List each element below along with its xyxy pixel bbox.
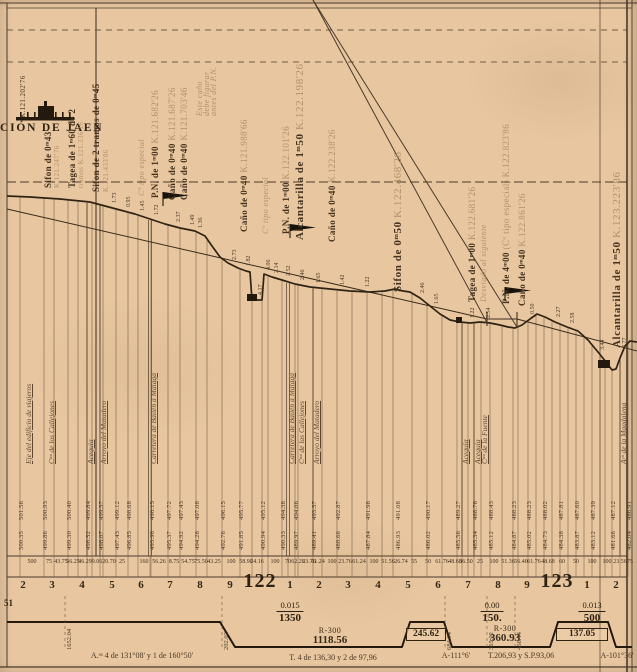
alignment-tick-value: 365.02 xyxy=(489,632,496,650)
gradient-length: 500 xyxy=(578,613,605,625)
location-label: Aʸᵒ de la Magdalena xyxy=(620,403,628,464)
structure-callout: Caño de 0ᵐ40 K.122.238'26 xyxy=(328,129,337,242)
grade-elevation-value: 491.08 xyxy=(396,501,403,520)
distance-value: 100 xyxy=(227,559,236,565)
distance-value: 48.68 xyxy=(541,559,555,565)
ground-elevation-value: 490.33 xyxy=(281,531,288,550)
ground-elevation-value: 482.04 xyxy=(627,531,634,550)
location-label: Eje del edificio de viajeros xyxy=(25,384,33,464)
cut-height-value: 4.06 xyxy=(266,259,272,270)
cut-height-value: 2.37 xyxy=(176,211,182,222)
distance-value: 75 xyxy=(627,559,633,565)
cut-height-value: 2.14 xyxy=(274,262,280,273)
callout-segment: Alcantarilla de 1ᵐ50 xyxy=(294,130,306,240)
grade-elevation-value: 493.57 xyxy=(312,501,319,520)
gradient-length: 150. xyxy=(481,613,504,625)
callout-segment: Caño de 0ᵐ40 xyxy=(179,141,189,200)
structure-callout: P.N. de 1ᵐ00 K.121.682'26 xyxy=(151,90,160,198)
grade-elevation-value: 494.06 xyxy=(294,501,301,520)
ground-elevation-value: 499.86 xyxy=(43,531,50,550)
alignment-tick-value: 684.04 xyxy=(447,632,454,650)
grade-elevation-value: 498.15 xyxy=(150,501,157,520)
callout-segment: P.N. de 1ᵐ00 xyxy=(281,179,291,234)
distance-value: 75 xyxy=(46,559,52,565)
ground-elevation-value: 485.56 xyxy=(456,531,463,550)
distance-value: 54.75 xyxy=(181,559,195,565)
callout-segment: Caño de 0ᵐ40 xyxy=(327,183,337,242)
grade-elevation-value: 492.87 xyxy=(336,501,343,520)
ground-elevation-value: 495.98 xyxy=(150,531,157,550)
cut-height-value: 1.45 xyxy=(140,200,146,211)
ground-elevation-value: 484.73 xyxy=(543,531,550,550)
callout-segment: K.122.101'26 xyxy=(281,126,291,179)
straight-length-box: 137.05 xyxy=(556,628,608,641)
cut-height-value: 1.82 xyxy=(246,256,252,267)
hectometer-number: 3 xyxy=(49,579,55,591)
station-icon xyxy=(34,112,36,117)
ground-elevation-value: 491.85 xyxy=(239,531,246,550)
grade-elevation-value: 500.40 xyxy=(67,501,74,520)
distance-value: 50 xyxy=(425,559,431,565)
grade-elevation-value: 487.81 xyxy=(559,501,566,520)
ground-elevation-value: 486.93 xyxy=(396,531,403,550)
grade-elevation-value: 495.12 xyxy=(261,501,268,520)
gradient-fraction: 0.013500 xyxy=(578,595,605,625)
ground-elevation-value: 487.84 xyxy=(366,531,373,550)
grade-elevation-value: 497.43 xyxy=(179,501,186,520)
callout-segment: Tagea de 1ᵐ60 de 2 xyxy=(67,109,77,188)
alignment-note: T.206,93 y S.P.93,06 xyxy=(488,651,554,660)
ground-elevation-value: 485.12 xyxy=(489,531,496,550)
ground-elevation-value: 492.76 xyxy=(221,531,228,550)
distance-value: 61.76 xyxy=(527,559,541,565)
distance-value: 70 xyxy=(285,559,291,565)
callout-segment: Alcantarilla de 1ᵐ50 xyxy=(611,238,623,348)
ground-elevation-value: 483.12 xyxy=(591,531,598,550)
grade-elevation-value: 497.72 xyxy=(167,501,174,520)
distance-value: 100 xyxy=(271,559,280,565)
distance-value: 50 xyxy=(573,559,579,565)
distance-value: 75.50 xyxy=(194,559,208,565)
distance-value: 20.70 xyxy=(102,559,116,565)
location-label: Carretera de Bailén á Málaga xyxy=(288,373,296,464)
callout-segment: Cº tipo especial xyxy=(261,177,270,234)
cut-height-value: 1.42 xyxy=(340,275,346,286)
kilometer-number: 122 xyxy=(244,570,277,593)
distance-value: 23.56 xyxy=(613,559,627,565)
alignment-note: A-111°6' xyxy=(442,651,471,660)
distance-value: 51.36 xyxy=(501,559,515,565)
location-label: Cⁿᵒ de la Fuente xyxy=(481,415,489,464)
grade-elevation-value: 496.15 xyxy=(221,501,228,520)
cut-height-value: 1.65 xyxy=(434,294,440,305)
callout-segment: Tagea de 1ᵐ00 xyxy=(467,240,477,302)
hectometer-number: 9 xyxy=(524,579,530,591)
hectometer-number: 5 xyxy=(405,579,411,591)
ground-elevation-value: 488.66 xyxy=(336,531,343,550)
cut-height-value: 2.52 xyxy=(286,266,292,277)
station-icon xyxy=(48,112,50,117)
hectometer-number: 3 xyxy=(345,579,351,591)
ground-elevation-value: 483.87 xyxy=(575,531,582,550)
cut-height-value: 1.73 xyxy=(112,192,118,203)
hectometer-number: 9 xyxy=(227,579,233,591)
grade-elevation-value: 491.98 xyxy=(366,501,373,520)
ground-elevation-value: 486.02 xyxy=(426,531,433,550)
ground-elevation-value: 485.02 xyxy=(527,531,534,550)
hectometer-number: 7 xyxy=(167,579,173,591)
grade-elevation-value: 490.17 xyxy=(426,501,433,520)
location-label: Arroyo del Matadero xyxy=(313,401,321,464)
distance-value: 500 xyxy=(28,559,37,565)
structure-callout: Tagea de 1ᵐ00 K.122.681'26 xyxy=(468,187,477,302)
callout-segment: Cº tipo especial xyxy=(137,139,146,196)
grade-elevation-value: 487.60 xyxy=(575,501,582,520)
profile-sheet: { "palette":{"paper":"#e8c7a0","ink":"#3… xyxy=(0,0,637,672)
callout-segment: K.122.861'26 xyxy=(517,193,527,246)
callout-segment: (Cº tipo especial) xyxy=(501,177,511,249)
distance-value: 36.50 xyxy=(459,559,473,565)
distance-value: 23.76 xyxy=(338,559,352,565)
callout-segment: Caño de 0ᵐ40 xyxy=(239,173,249,232)
grade-elevation-value: 498.68 xyxy=(127,501,134,520)
curve-length: 1118.56 xyxy=(313,635,348,646)
distance-value: 26.74 xyxy=(394,559,408,565)
hectometer-number: 4 xyxy=(79,579,85,591)
grade-elevation-value: 487.39 xyxy=(591,501,598,520)
culvert-mark xyxy=(598,360,610,368)
callout-segment: P.N. de 1ᵐ00 xyxy=(150,143,160,198)
distance-value: 61.24 xyxy=(311,559,325,565)
location-label: Cⁿᵒ de los Callejones xyxy=(48,401,56,464)
kilometer-number: 123 xyxy=(541,570,574,593)
alignment-tick-value: 1652.04 xyxy=(67,629,74,650)
grade-elevation-value: 488.02 xyxy=(543,501,550,520)
ground-elevation-value: 500.35 xyxy=(19,531,26,550)
callout-segment: K.121.682'26 xyxy=(150,90,160,143)
grade-elevation-value: 489.27 xyxy=(456,501,463,520)
ground-elevation-value: 497.43 xyxy=(115,531,122,550)
hectometer-number: 4 xyxy=(375,579,381,591)
grade-elevation-value: 494.38 xyxy=(281,501,288,520)
grade-elevation-value: 486.91 xyxy=(627,501,634,520)
callout-segment: K.121.687'26 xyxy=(167,87,177,140)
structure-callout: P.N. de 1ᵐ00 K.122.101'26 xyxy=(282,126,291,234)
distance-value: 100 xyxy=(603,559,612,565)
alignment-tick-value: 202.02 xyxy=(224,632,231,650)
ground-elevation-value: 484.38 xyxy=(559,531,566,550)
distance-value: 100 xyxy=(328,559,337,565)
distance-value: 56.40 xyxy=(514,559,528,565)
cut-height-value: 1.72 xyxy=(154,205,160,216)
structure-callout: Caño de 0ᵐ40 K.121.687'26 xyxy=(168,87,177,200)
ground-elevation-value: 499.30 xyxy=(67,531,74,550)
distance-value: 46.29 xyxy=(78,559,92,565)
cut-height-value: 2.46 xyxy=(300,270,306,281)
callout-segment: K.121.247'76 xyxy=(53,145,61,188)
corner-value: 51 xyxy=(4,598,13,608)
structure-callout: Desviado al siguiente xyxy=(480,224,488,302)
cut-height-value: 2.46 xyxy=(420,283,426,294)
station-icon xyxy=(27,112,29,117)
grade-elevation-value: 488.23 xyxy=(527,501,534,520)
gradient-slope: 0.015 xyxy=(276,600,303,612)
callout-segment: Sifon de 0ᵐ43 xyxy=(43,131,53,188)
hectometer-number: 6 xyxy=(138,579,144,591)
structure-callout: Caño de 0ᵐ40 K.121.988'66 xyxy=(240,119,249,232)
distance-value: 160 xyxy=(140,559,149,565)
distance-value: 43.25 xyxy=(207,559,221,565)
distance-value: 25 xyxy=(477,559,483,565)
gradient-fraction: 0.00150. xyxy=(481,595,504,625)
culvert-mark xyxy=(456,317,462,323)
ground-elevation-value: 498.52 xyxy=(86,531,93,550)
cut-height-value: 1.65 xyxy=(316,272,322,283)
gradient-slope: 0.013 xyxy=(578,600,605,612)
gradient-fraction: 0.0151350 xyxy=(276,595,303,625)
cut-height-value: 4.17 xyxy=(258,285,264,296)
structure-callout: Sifon de 2 tramos de 0ᵐ45 xyxy=(92,83,101,192)
hectometer-number: 2 xyxy=(613,579,619,591)
hectometer-number: 5 xyxy=(109,579,115,591)
grade-elevation-value: 488.23 xyxy=(512,501,519,520)
structure-callout: Cº tipo especial xyxy=(138,139,146,196)
callout-segment: Sifon de 0ᵐ50 xyxy=(392,218,404,292)
hectometer-number: 6 xyxy=(435,579,441,591)
callout-segment: Desviado al siguiente xyxy=(479,224,488,302)
distance-value: 61.24 xyxy=(352,559,366,565)
structure-callout: Sifon de 0ᵐ50 K.122.468'26 xyxy=(393,151,404,292)
grade-elevation-value: 501.56 xyxy=(19,501,26,520)
ground-elevation-value: 489.97 xyxy=(294,531,301,550)
hectometer-number: 8 xyxy=(495,579,501,591)
ground-elevation-value: 495.37 xyxy=(167,531,174,550)
cut-height-value: 3.44 xyxy=(600,339,606,350)
ground-elevation-value: 496.85 xyxy=(127,531,134,550)
cut-height-value: 1.22 xyxy=(365,276,371,287)
distance-value: 100 xyxy=(588,559,597,565)
grade-elevation-value: 499.57 xyxy=(99,501,106,520)
ground-elevation-value: 489.41 xyxy=(312,531,319,550)
callout-segment: P.N. de 4ᵐ00 xyxy=(501,249,511,304)
callout-segment: K.121.703'46 xyxy=(179,87,189,140)
cut-height-value: 2.58 xyxy=(570,313,576,324)
ground-elevation-value: 481.66 xyxy=(611,531,618,550)
ground-elevation-value: 484.87 xyxy=(512,531,519,550)
cut-height-value: 2.54 xyxy=(486,307,492,318)
gradient-slope: 0.00 xyxy=(481,600,504,612)
callout-segment: K.122.468'26 xyxy=(392,151,404,218)
drawing-area: CIÓN DE JAEN K.121.202'76Sifon de 0ᵐ43K.… xyxy=(0,0,637,672)
structure-callout: Tagea de 1ᵐ60 de 2 xyxy=(68,109,77,188)
station-icon xyxy=(62,112,64,117)
alignment-note: A.ᵒˢ 4 de 131°08' y 1 de 160°50' xyxy=(91,651,193,660)
callout-segment: K.121.202'76 xyxy=(19,75,27,118)
grade-elevation-value: 500.93 xyxy=(43,501,50,520)
grade-elevation-value: 495.77 xyxy=(239,501,246,520)
callout-segment: K.121.433'86 xyxy=(102,149,110,192)
ground-elevation-value: 498.07 xyxy=(99,531,106,550)
callout-segment: K.122.681'26 xyxy=(467,187,477,240)
hectometer-number: 2 xyxy=(316,579,322,591)
callout-segment: tramos K.121.336'16 xyxy=(77,122,85,188)
hectometer-number: 2 xyxy=(20,579,26,591)
grade-elevation-value: 488.43 xyxy=(489,501,496,520)
distance-value: 55 xyxy=(411,559,417,565)
cut-height-value: 1.36 xyxy=(198,217,204,228)
callout-segment: K.122.238'26 xyxy=(327,129,337,182)
structure-callout: Alcantarilla de 1ᵐ50 K.122.198'26 xyxy=(295,63,306,240)
culvert-mark xyxy=(247,294,257,301)
grade-elevation-value: 499.12 xyxy=(115,501,122,520)
distance-value: 24.16 xyxy=(250,559,264,565)
structure-callout: Caño de 0ᵐ40 K.122.861'26 xyxy=(518,193,527,306)
gradient-length: 1350 xyxy=(276,613,303,625)
structure-callout: Sifon de 0ᵐ43 xyxy=(44,131,53,188)
structure-callout: tramos K.121.336'16 xyxy=(78,122,85,188)
ground-elevation-value: 490.94 xyxy=(261,531,268,550)
location-label: Acequia xyxy=(87,439,95,464)
callout-segment: K.121.988'66 xyxy=(239,119,249,172)
cut-height-value: 2.27 xyxy=(556,307,562,318)
structure-callout: Alcantarilla de 1ᵐ50 K.123.223'86 xyxy=(612,171,623,348)
distance-value: 25 xyxy=(119,559,125,565)
callout-segment: K.122.823'86 xyxy=(501,124,511,177)
station-icon xyxy=(55,112,57,117)
callout-segment: Caño de 0ᵐ40 xyxy=(167,141,177,200)
distance-value: 8.75 xyxy=(169,559,180,565)
location-label: Acequia xyxy=(462,439,470,464)
ground-elevation-value: 485.34 xyxy=(473,531,480,550)
distance-value: 51.56 xyxy=(381,559,395,565)
structure-callout: Cº tipo especial xyxy=(262,177,270,234)
cut-height-value: 4.77 xyxy=(622,338,628,349)
hectometer-number: 1 xyxy=(584,579,590,591)
ground-elevation-value: 494.28 xyxy=(195,531,202,550)
callout-segment: K.123.223'86 xyxy=(611,171,623,238)
location-label: Arroyo del Matadero xyxy=(100,401,108,464)
straight-length-box: 245.62 xyxy=(406,628,446,641)
cut-height-value: 2.73 xyxy=(232,250,238,261)
grade-elevation-value: 487.12 xyxy=(611,501,618,520)
alignment-note: A-101°36' xyxy=(600,651,633,660)
callout-segment: K.122.198'26 xyxy=(294,63,306,130)
ground-elevation-value: 494.92 xyxy=(179,531,186,550)
cut-height-value: 0.50 xyxy=(530,304,536,315)
distance-value: 56.26 xyxy=(152,559,166,565)
structure-callout: K.121.433'86 xyxy=(103,149,110,192)
curve-label: R-3001118.56 xyxy=(313,626,348,646)
structure-callout: K.121.202'76 xyxy=(20,75,27,118)
grade-elevation-value: 499.84 xyxy=(86,501,93,520)
callout-segment: antes del P.N. xyxy=(209,67,218,116)
cut-height-value: 1.49 xyxy=(190,215,196,226)
distance-value: 60 xyxy=(559,559,565,565)
hectometer-number: 1 xyxy=(287,579,293,591)
station-icon xyxy=(38,106,54,117)
location-label: Cⁿᵒ de las Callejones xyxy=(298,401,306,464)
station-icon xyxy=(44,101,47,106)
structure-callout: P.N. de 4ᵐ00 (Cº tipo especial) K.122.82… xyxy=(502,124,511,304)
callout-segment: Sifon de 2 tramos de 0ᵐ45 xyxy=(91,83,101,192)
alignment-tick-value: 456.44 xyxy=(517,632,524,650)
cut-height-value: 1.22 xyxy=(470,308,476,319)
structure-callout: Caño de 0ᵐ40 K.121.703'46 xyxy=(180,87,189,200)
distance-value: 61.76 xyxy=(435,559,449,565)
structure-callout: K.121.247'76 xyxy=(54,145,61,188)
cut-height-value: 0.95 xyxy=(126,196,132,207)
callout-segment: Caño de 0ᵐ40 xyxy=(517,247,527,306)
hectometer-number: 7 xyxy=(465,579,471,591)
station-icon xyxy=(41,112,43,117)
location-label: Carretera de Bailén á Málaga xyxy=(150,373,158,464)
alignment-note: T. 4 de 136,30 y 2 de 97,96 xyxy=(289,653,376,662)
distance-value: 9.06 xyxy=(92,559,103,565)
grade-elevation-value: 488.76 xyxy=(473,501,480,520)
structure-callout: antes del P.N. xyxy=(210,67,218,116)
distance-value: 100 xyxy=(490,559,499,565)
hectometer-number: 8 xyxy=(197,579,203,591)
distance-value: 100 xyxy=(370,559,379,565)
grade-elevation-value: 497.08 xyxy=(195,501,202,520)
